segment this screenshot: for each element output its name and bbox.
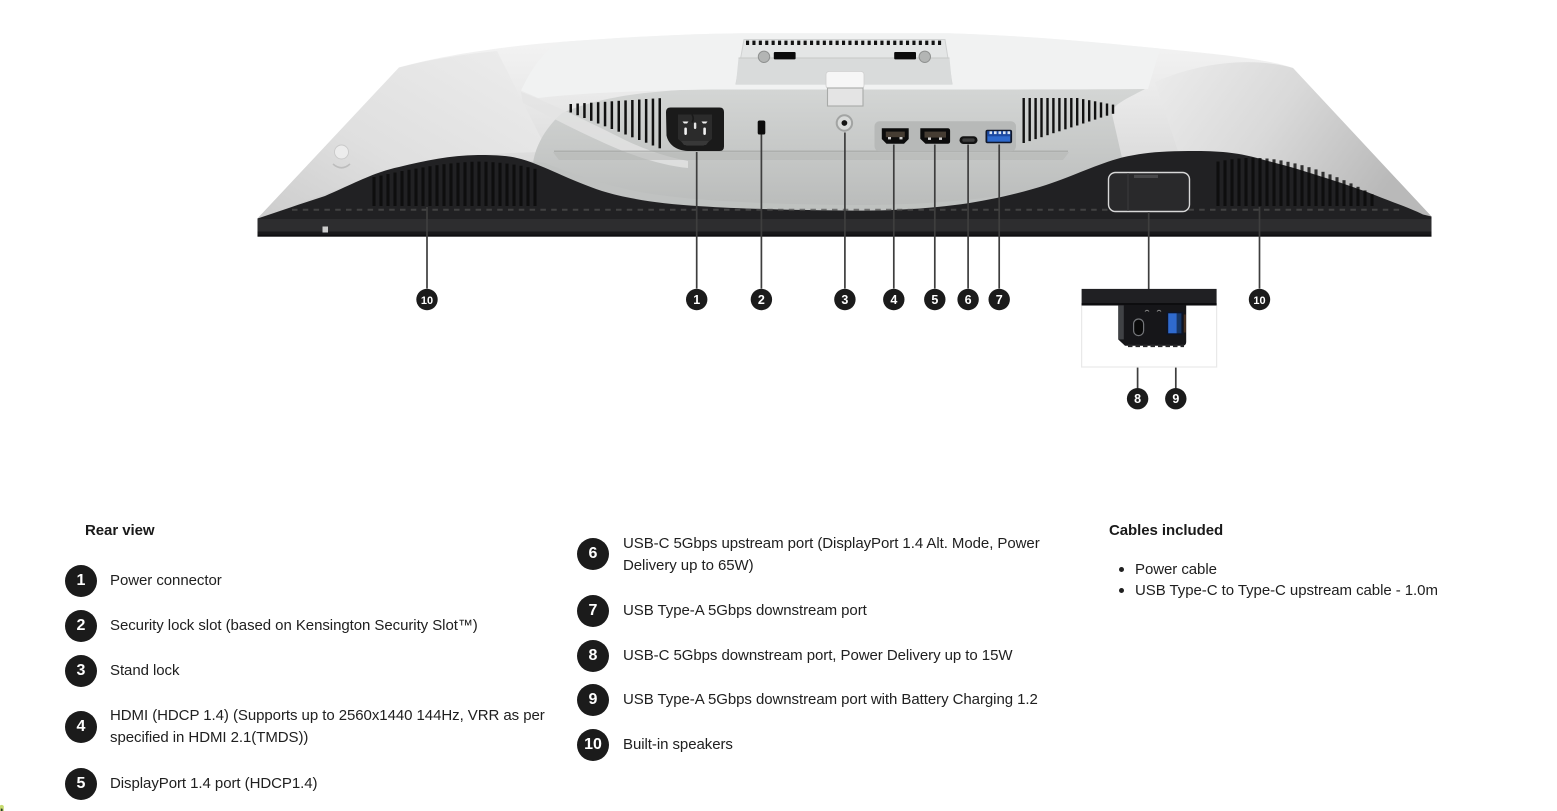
svg-text:1: 1 bbox=[693, 293, 700, 307]
svg-text:4: 4 bbox=[890, 293, 897, 307]
svg-text:8: 8 bbox=[1134, 392, 1141, 406]
svg-text:6: 6 bbox=[965, 293, 972, 307]
svg-text:7: 7 bbox=[996, 293, 1003, 307]
svg-text:3: 3 bbox=[841, 293, 848, 307]
svg-text:9: 9 bbox=[1172, 392, 1179, 406]
svg-text:10: 10 bbox=[1253, 295, 1265, 307]
svg-text:5: 5 bbox=[931, 293, 938, 307]
svg-text:2: 2 bbox=[758, 293, 765, 307]
svg-text:10: 10 bbox=[421, 295, 433, 307]
